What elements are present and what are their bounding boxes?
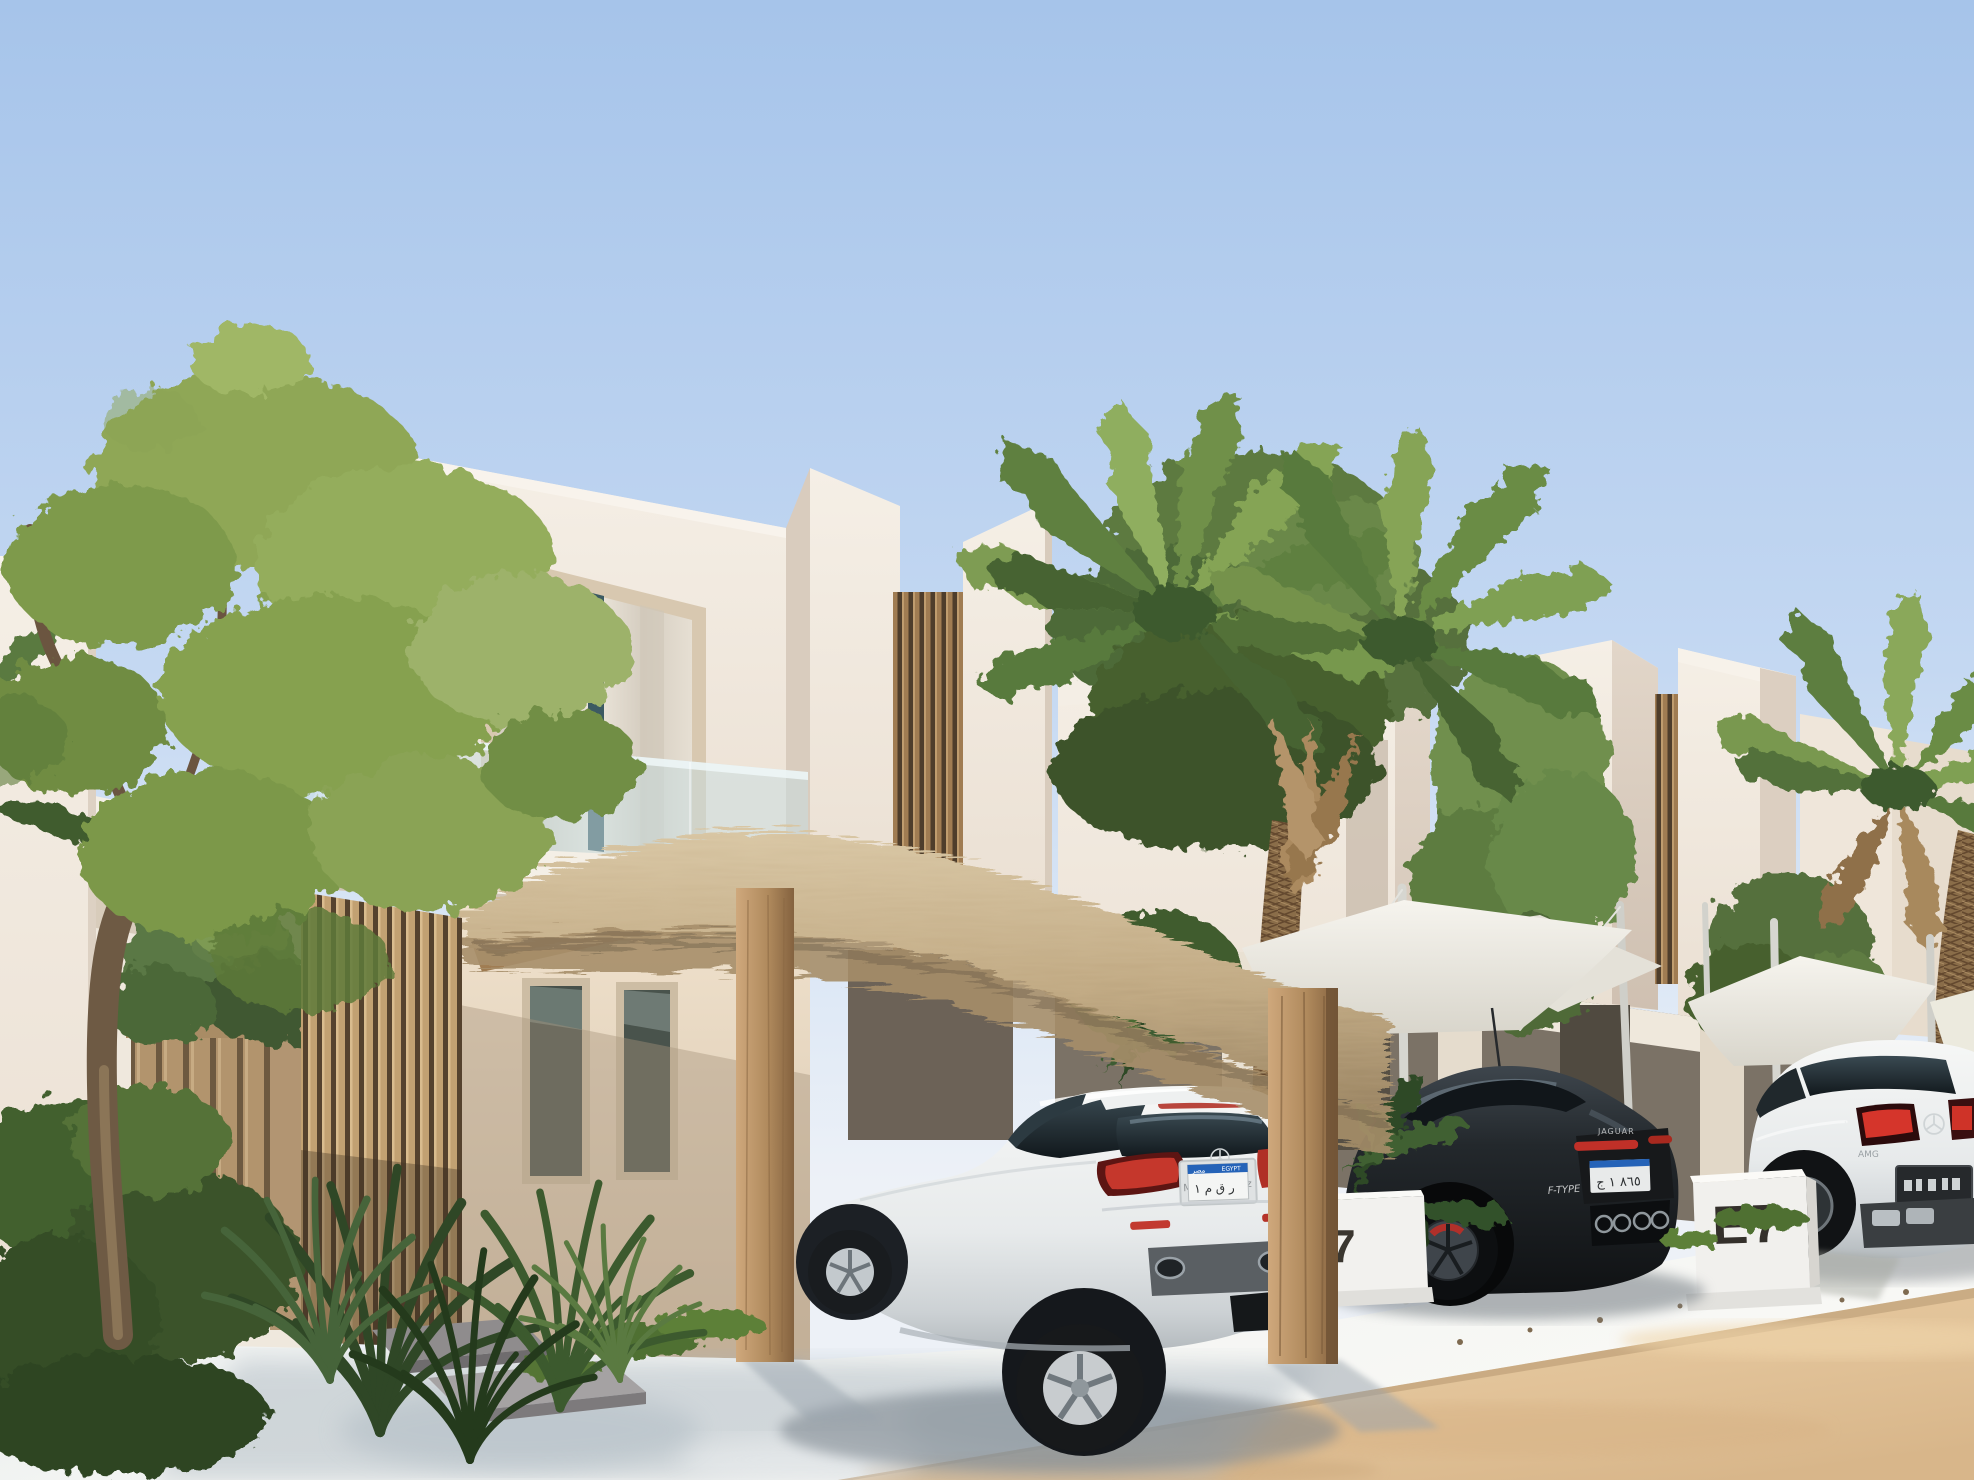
coupe-plate-text: ٨٦٥ ١ ج (1596, 1174, 1641, 1191)
hatchback-plate-text: ر ق م ١ (1194, 1180, 1235, 1196)
hatchback-rear-hub (1071, 1379, 1089, 1397)
coupe-brand-badge: JAGUAR (1597, 1127, 1635, 1136)
plate-band-right: EGYPT (1222, 1165, 1242, 1173)
carport-post-left (736, 888, 794, 1362)
plate-band-left: مصر (1191, 1166, 1206, 1175)
scene: AMG E7 JAGUAR ٨٦٥ ١ ج F-TYPE (0, 0, 1974, 1480)
coupe-tail-light-right (1648, 1135, 1672, 1144)
rendering-canvas: AMG E7 JAGUAR ٨٦٥ ١ ج F-TYPE (0, 0, 1974, 1480)
suv-tail-light-right-red (1952, 1106, 1972, 1130)
hatchback-rear-wheel-glimpse (1230, 1292, 1272, 1332)
coupe-model-badge: F-TYPE (1547, 1184, 1581, 1197)
hatchback-plate-group: Me nz مصر EGYPT ر ق م ١ (1179, 1159, 1256, 1206)
hatchback-exhaust-left (1156, 1258, 1184, 1278)
villa3-wood-slat-accent (1655, 694, 1679, 984)
coupe-plate: ٨٦٥ ١ ج (1589, 1159, 1650, 1193)
post-right-shade-edge (1326, 988, 1338, 1364)
villa-number-sign-partial: 7 (1324, 1190, 1434, 1307)
suv-exhaust-right (1906, 1208, 1934, 1224)
suv-exhaust-left (1872, 1210, 1900, 1226)
suv-amg-badge: AMG (1858, 1150, 1879, 1160)
